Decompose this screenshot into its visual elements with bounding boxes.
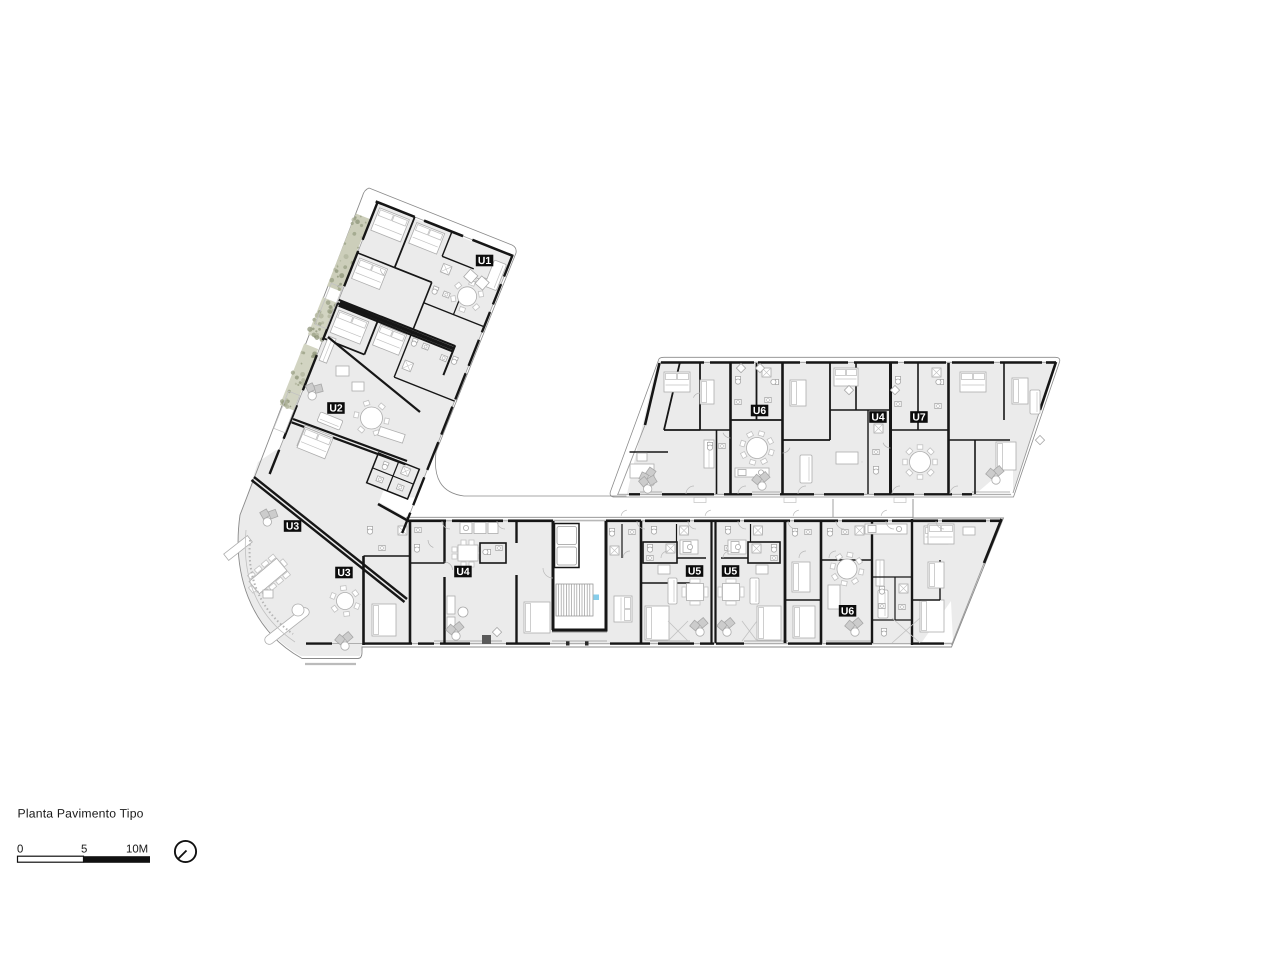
svg-text:5: 5	[81, 844, 87, 856]
svg-text:U5: U5	[688, 567, 702, 578]
svg-text:0: 0	[17, 844, 23, 856]
svg-text:U3: U3	[337, 568, 351, 579]
svg-text:U4: U4	[871, 413, 885, 424]
svg-text:U3: U3	[286, 522, 300, 533]
svg-text:U4: U4	[456, 567, 470, 578]
svg-text:U7: U7	[912, 413, 926, 424]
svg-text:U5: U5	[724, 567, 738, 578]
svg-text:U2: U2	[329, 404, 343, 415]
svg-text:U6: U6	[753, 406, 767, 417]
svg-text:Planta Pavimento Tipo: Planta Pavimento Tipo	[18, 807, 144, 821]
svg-text:U1: U1	[478, 256, 492, 267]
svg-text:U6: U6	[841, 607, 855, 618]
svg-text:10M: 10M	[126, 844, 148, 856]
